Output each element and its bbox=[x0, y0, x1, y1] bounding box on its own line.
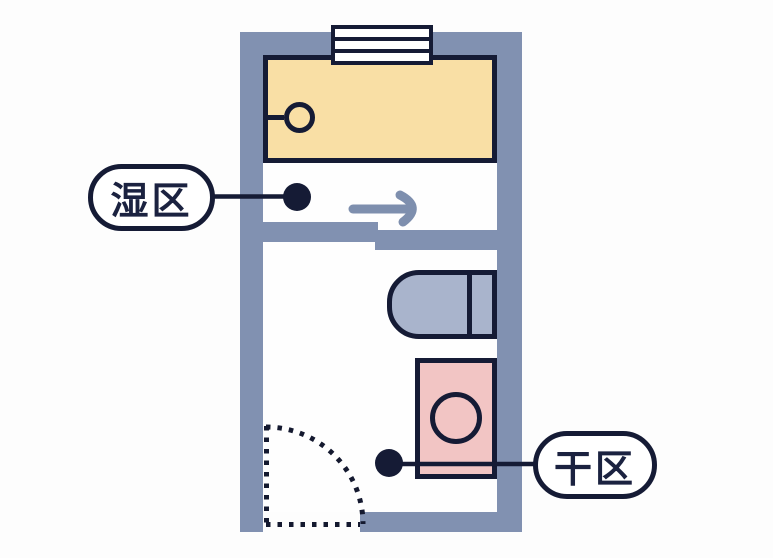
toilet-icon bbox=[387, 270, 497, 339]
partition-wall-right bbox=[375, 230, 522, 250]
dry-zone-text: 干区 bbox=[554, 438, 636, 493]
wet-zone-label: 湿区 bbox=[88, 164, 215, 231]
bathtub-icon bbox=[263, 55, 497, 163]
bathroom-floor-plan: 湿区 干区 bbox=[0, 0, 773, 558]
washing-machine-icon bbox=[415, 358, 497, 479]
window-icon bbox=[331, 25, 433, 65]
washer-drum-icon bbox=[430, 392, 482, 444]
dry-zone-label: 干区 bbox=[533, 431, 657, 499]
toilet-tank-divider bbox=[467, 275, 472, 334]
door-opening bbox=[263, 512, 360, 532]
faucet-icon bbox=[284, 102, 315, 133]
partition-wall-left bbox=[240, 222, 378, 242]
wet-zone-text: 湿区 bbox=[110, 170, 192, 225]
faucet-stem bbox=[263, 115, 284, 120]
